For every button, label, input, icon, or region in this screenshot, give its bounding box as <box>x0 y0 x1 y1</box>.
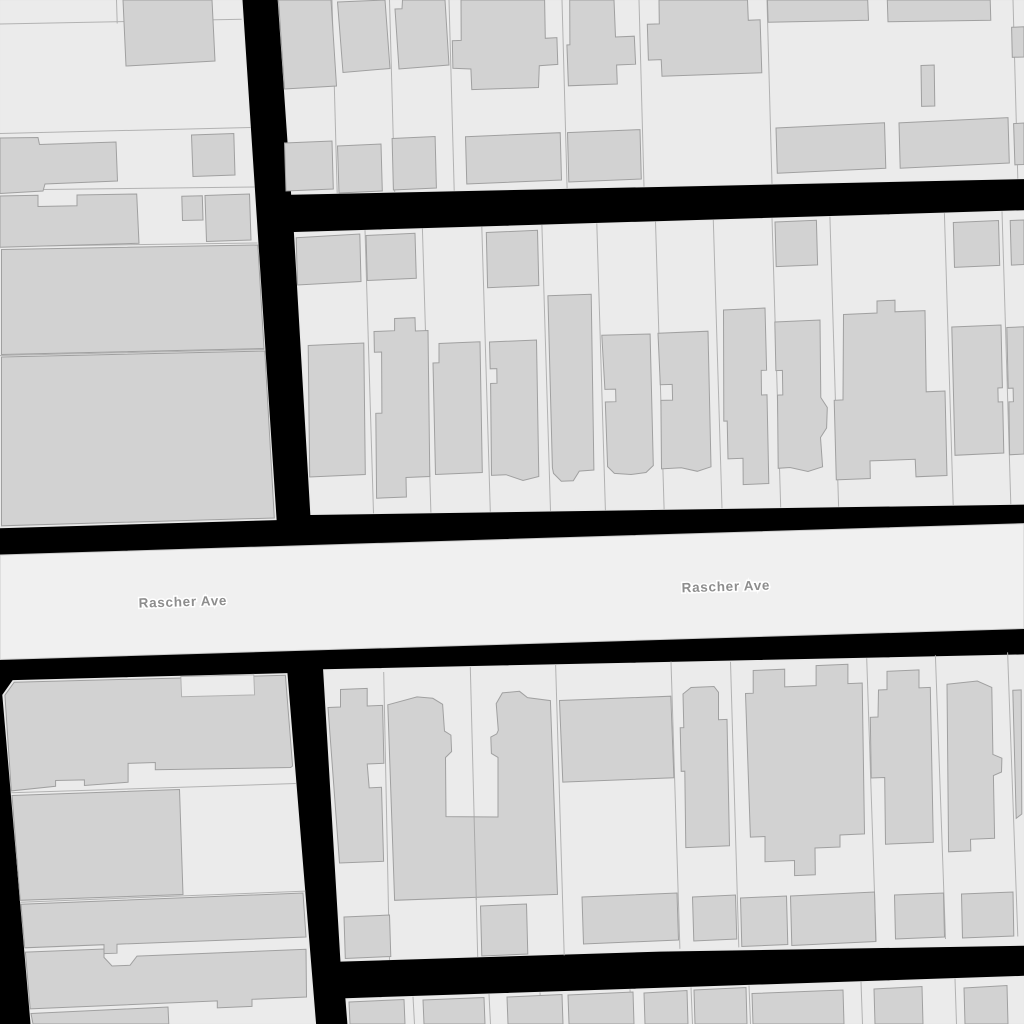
svg-text:Rascher Ave: Rascher Ave <box>681 578 770 596</box>
svg-text:Rascher Ave: Rascher Ave <box>138 593 227 611</box>
